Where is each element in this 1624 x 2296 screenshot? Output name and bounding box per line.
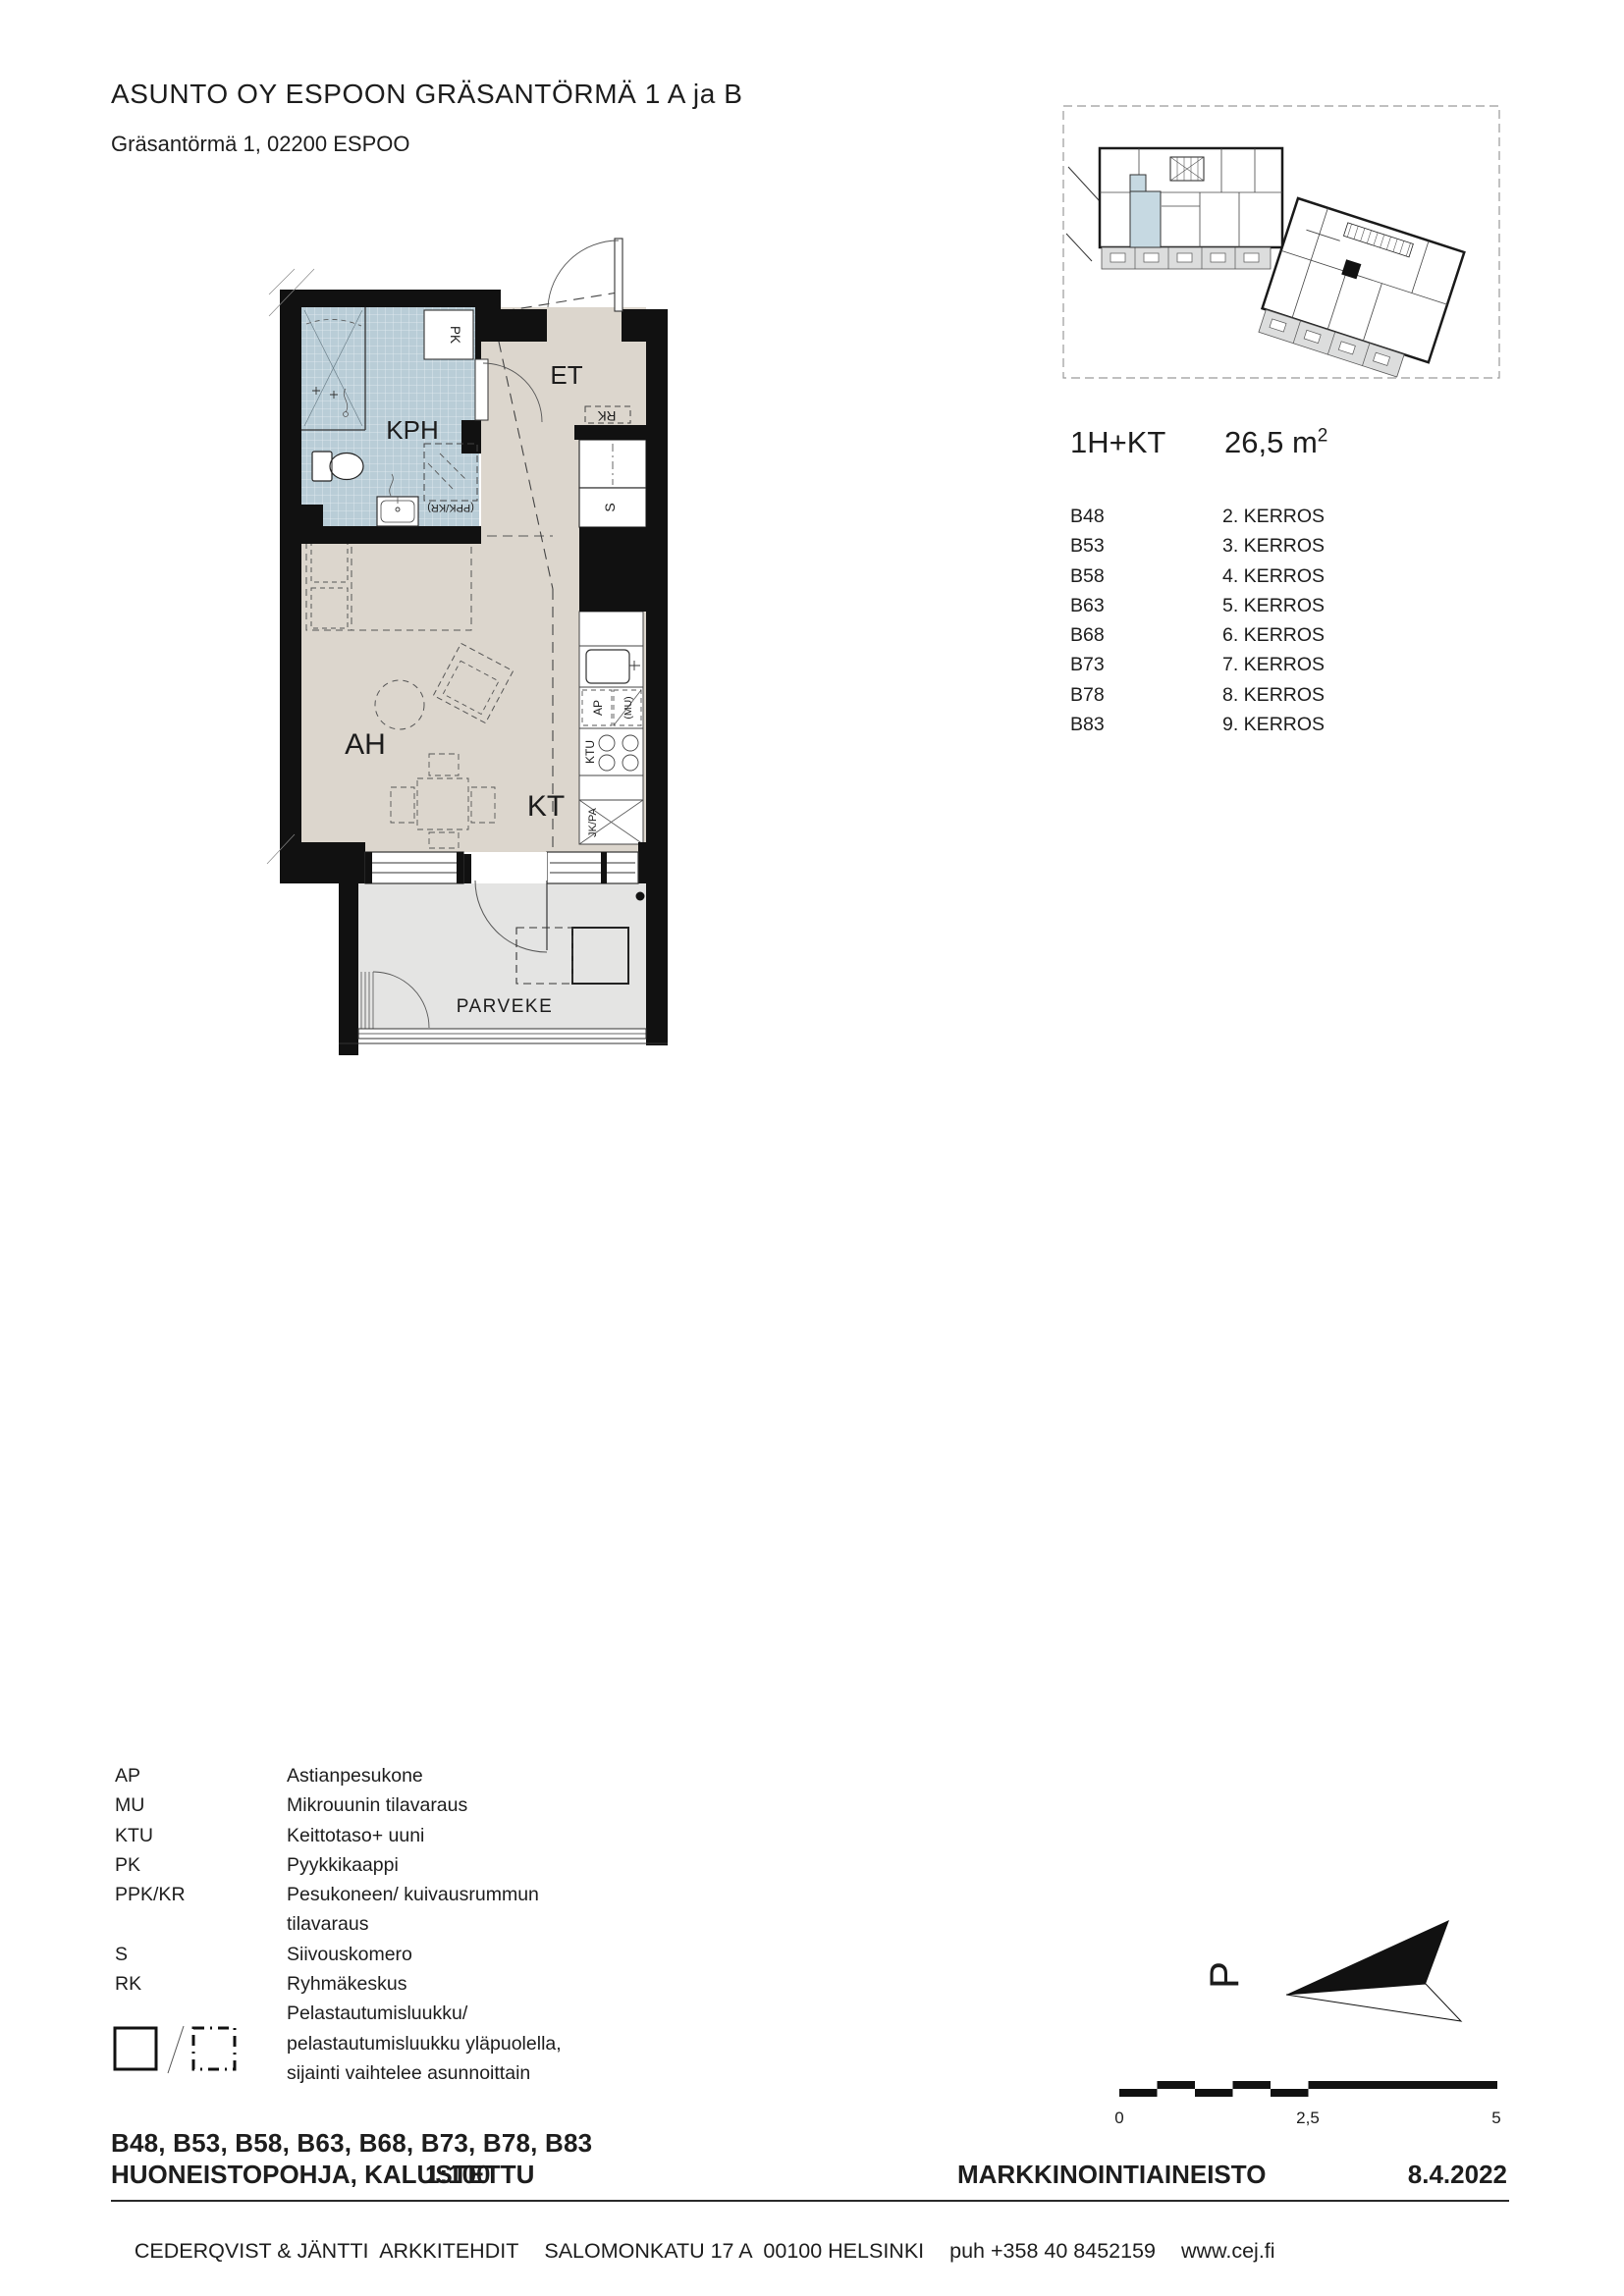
scale-tick-5: 5: [1491, 2109, 1500, 2127]
label-kt: KT: [527, 790, 565, 823]
drawing-canvas: KPH ET AH KT PARVEKE PK (PPK/KR) RK S AP…: [0, 0, 1624, 2296]
balcony-door-opening: [471, 852, 547, 883]
windows: [365, 852, 638, 883]
document-page: ASUNTO OY ESPOON GRÄSANTÖRMÄ 1 A ja B Gr…: [0, 0, 1624, 2296]
toilet-bowl: [330, 454, 363, 480]
entry-threshold: [547, 320, 622, 346]
entry-door: [548, 239, 623, 311]
label-s: S: [602, 503, 618, 511]
toilet-tank: [312, 452, 332, 481]
site-key-plan: [1063, 106, 1499, 385]
site-building-b: [1100, 148, 1282, 269]
label-ah: AH: [345, 728, 386, 761]
label-kph: KPH: [386, 415, 438, 445]
label-jk-pa: JK/PA: [587, 807, 599, 836]
label-rk: RK: [598, 408, 617, 423]
window: [547, 852, 638, 883]
label-ktu: KTU: [583, 740, 597, 764]
kitchen-sink: [586, 650, 629, 683]
label-parveke: PARVEKE: [457, 996, 554, 1017]
label-ppk-kr: (PPK/KR): [427, 502, 474, 513]
scale-tick-25: 2,5: [1296, 2109, 1320, 2127]
window: [365, 852, 463, 883]
north-label: P: [1201, 1961, 1247, 1989]
scale-bar: 0 2,5 5: [1114, 2081, 1500, 2127]
scale-tick-0: 0: [1114, 2109, 1123, 2127]
north-arrow-icon: P: [1201, 1920, 1461, 2021]
floor-plan: KPH ET AH KT PARVEKE PK (PPK/KR) RK S AP…: [267, 239, 668, 1055]
label-pk: PK: [448, 326, 462, 344]
drain-dot: [636, 892, 645, 901]
label-ap: AP: [591, 700, 605, 716]
site-building-a: [1255, 198, 1464, 385]
label-et: ET: [550, 360, 582, 390]
label-mu: (MU): [623, 696, 634, 719]
